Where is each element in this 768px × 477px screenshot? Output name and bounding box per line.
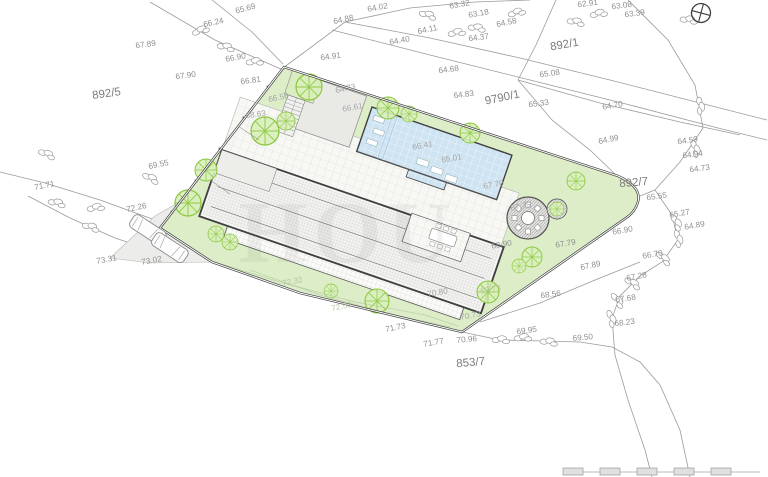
shrub-icon xyxy=(86,202,105,213)
elevation-label: 68.23 xyxy=(614,317,636,329)
shrub-icon xyxy=(216,41,235,52)
elevation-label: 67.89 xyxy=(580,259,602,272)
parcel-label: 9790/1 xyxy=(484,89,521,108)
elevation-label: 67.90 xyxy=(175,70,197,82)
shrub-icon xyxy=(47,197,66,208)
shrub-icon xyxy=(81,221,100,233)
shrub-icon xyxy=(246,57,264,66)
elevation-label: 65.08 xyxy=(539,68,561,80)
elevation-label: 64.83 xyxy=(453,89,475,100)
elevation-label: 65.27 xyxy=(669,207,691,219)
elevation-label: 67.89 xyxy=(135,39,157,51)
elevation-label: 64.70 xyxy=(602,99,624,111)
shrub-icon xyxy=(37,147,56,161)
tree-icon xyxy=(251,117,279,145)
site-plan-drawing: HOU 65.69 66.24 67.89 66.90 67.90 66.81 … xyxy=(0,0,768,477)
elevation-label: 64.89 xyxy=(684,219,706,231)
elevation-label: 65.33 xyxy=(528,98,550,110)
elevation-label: 73.31 xyxy=(96,253,118,265)
shrub-icon xyxy=(589,8,608,19)
elevation-label: 64.94 xyxy=(682,149,704,161)
tree-icon xyxy=(567,172,585,190)
tree-icon xyxy=(208,226,224,242)
elevation-label: 67.68 xyxy=(615,293,637,305)
elevation-label: 64.37 xyxy=(468,32,490,44)
elevation-label: 71.77 xyxy=(423,336,445,348)
scale-bar xyxy=(563,468,760,475)
elevation-label: 64.91 xyxy=(320,51,342,63)
elevation-label: 69.55 xyxy=(148,158,170,171)
site-plan-page: HOU 65.69 66.24 67.89 66.90 67.90 66.81 … xyxy=(0,0,768,477)
elevation-label: 64.58 xyxy=(496,16,518,29)
elevation-label: 64.73 xyxy=(689,163,711,175)
elevation-label: 66.90 xyxy=(225,51,247,63)
shrub-icon xyxy=(468,23,486,32)
elevation-label: 64.40 xyxy=(389,34,411,46)
elevation-label: 63.32 xyxy=(449,0,471,11)
elevation-label: 64.88 xyxy=(333,13,355,26)
elevation-label: 63.18 xyxy=(468,7,490,19)
patio-table xyxy=(522,212,535,225)
elevation-label: 72.26 xyxy=(126,201,148,214)
shrub-icon xyxy=(540,337,558,346)
elevation-label: 64.11 xyxy=(417,23,439,36)
elevation-label: 64.02 xyxy=(367,1,389,13)
shrub-icon xyxy=(567,17,585,27)
shrub-icon xyxy=(492,336,510,344)
parcel-label: 892/1 xyxy=(549,37,579,54)
elevation-label: 68.56 xyxy=(540,289,562,301)
parcel-label: 853/7 xyxy=(456,356,486,370)
tree-icon xyxy=(222,234,238,250)
shrub-icon xyxy=(141,171,160,186)
elevation-label: 70.96 xyxy=(456,334,478,345)
watermark: HOU xyxy=(239,185,457,282)
elevation-label: 69.95 xyxy=(516,325,538,337)
shrub-icon xyxy=(447,27,466,38)
elevation-label: 64.99 xyxy=(598,133,620,146)
parcel-label: 892/5 xyxy=(91,86,121,102)
elevation-label: 67.28 xyxy=(626,270,648,282)
parcel-label: 892/7 xyxy=(619,176,649,190)
elevation-label: 65.69 xyxy=(234,1,257,15)
elevation-label: 65.55 xyxy=(646,191,668,203)
shrub-icon xyxy=(418,9,437,21)
elevation-label: 69.50 xyxy=(572,332,594,343)
elevation-label: 71.73 xyxy=(385,321,407,334)
elevation-label: 66.81 xyxy=(240,75,262,87)
tree-icon xyxy=(550,202,564,216)
elevation-label: 64.68 xyxy=(438,64,460,76)
elevation-label: 66.24 xyxy=(203,16,225,29)
tree-icon xyxy=(512,259,526,273)
shrub-icon xyxy=(695,96,706,115)
tree-icon xyxy=(277,112,295,130)
elevation-label: 62.91 xyxy=(577,0,599,9)
elevation-label: 63.39 xyxy=(624,8,646,20)
